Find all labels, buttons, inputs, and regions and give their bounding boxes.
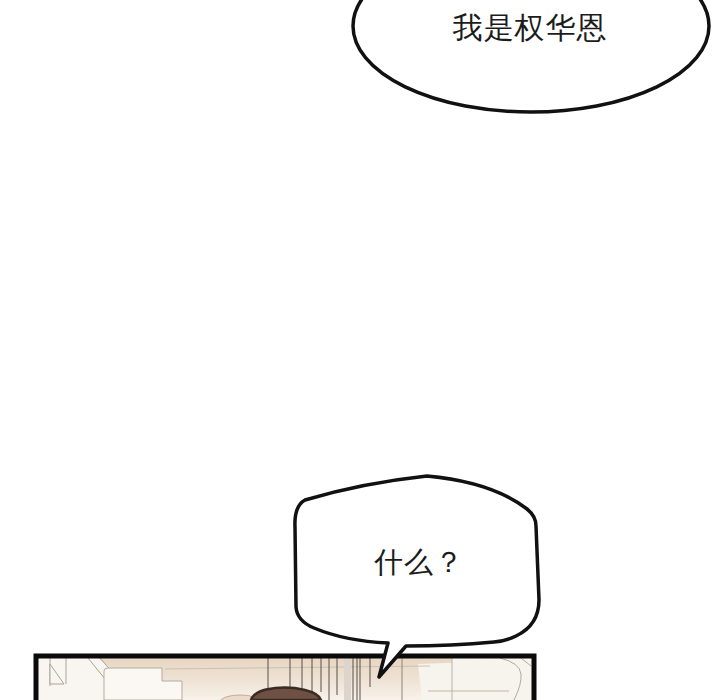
right-wall-area — [418, 660, 532, 700]
panel-interior — [38, 658, 532, 700]
blind-light-band — [344, 658, 351, 700]
speech-bubble-middle-text: 什么？ — [334, 545, 504, 579]
comic-panel — [36, 656, 534, 700]
artwork-canvas — [0, 0, 720, 700]
comic-page: 我是权华恩 什么？ — [0, 0, 720, 700]
speech-bubble-top-text: 我是权华恩 — [420, 10, 640, 46]
